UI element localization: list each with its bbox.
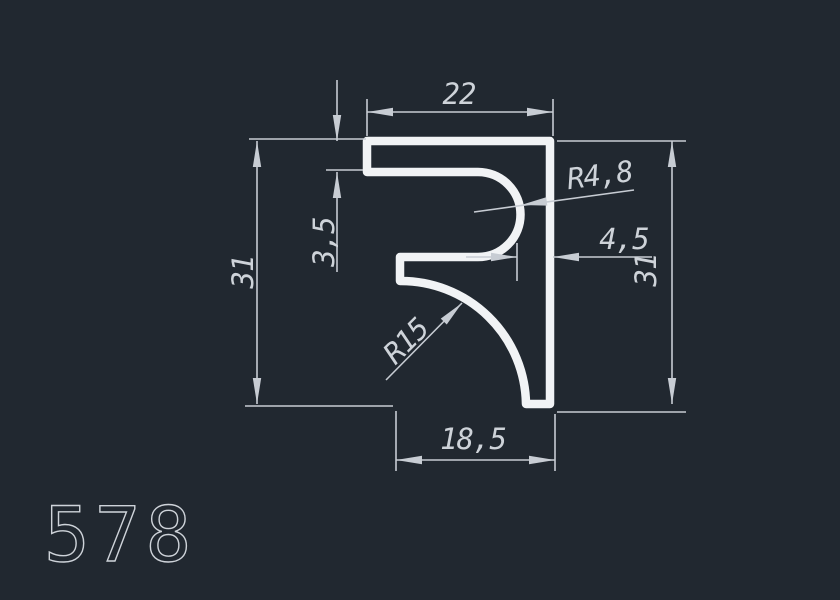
cad-drawing: 22 3,5 31 31 4,5 18,5 R4,8 R15 578	[0, 0, 840, 600]
dim-label-bottom-width: 18,5	[440, 422, 506, 456]
cad-viewport: 22 3,5 31 31 4,5 18,5 R4,8 R15 578	[0, 0, 840, 600]
dim-label-top-width: 22	[443, 77, 476, 111]
dim-label-flange-thickness: 3,5	[307, 217, 341, 267]
dim-label-height-right: 31	[629, 254, 663, 288]
part-number-label: 578	[44, 490, 196, 579]
dim-label-height-left: 31	[226, 256, 260, 290]
dim-label-tip-offset: 4,5	[599, 222, 648, 256]
